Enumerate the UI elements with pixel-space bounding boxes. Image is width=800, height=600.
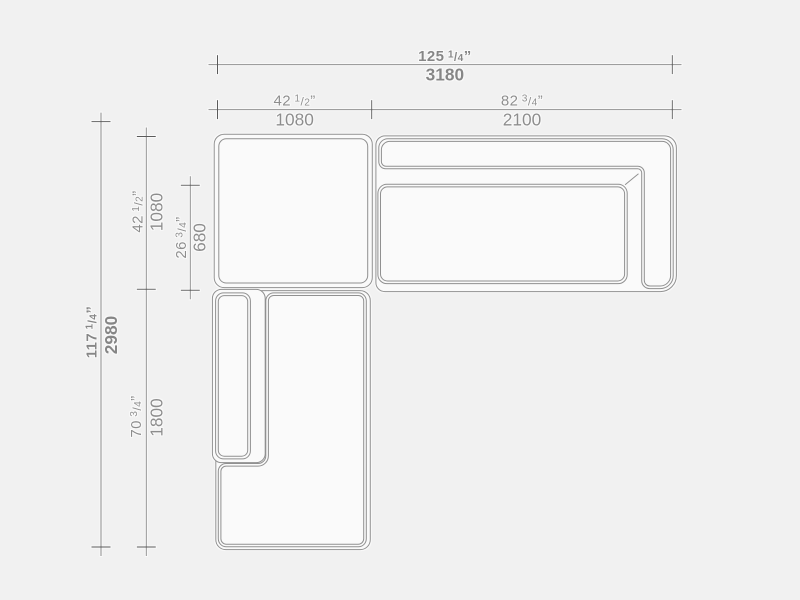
svg-text:2980: 2980 — [101, 316, 121, 354]
svg-text:3180: 3180 — [426, 65, 464, 85]
svg-text:117 1/4”: 117 1/4” — [83, 306, 100, 359]
svg-text:2100: 2100 — [503, 109, 541, 129]
svg-text:680: 680 — [190, 223, 210, 252]
svg-text:1080: 1080 — [275, 109, 313, 129]
svg-text:1800: 1800 — [146, 398, 166, 436]
svg-text:125 1/4”: 125 1/4” — [418, 48, 471, 65]
svg-text:1080: 1080 — [146, 193, 166, 231]
